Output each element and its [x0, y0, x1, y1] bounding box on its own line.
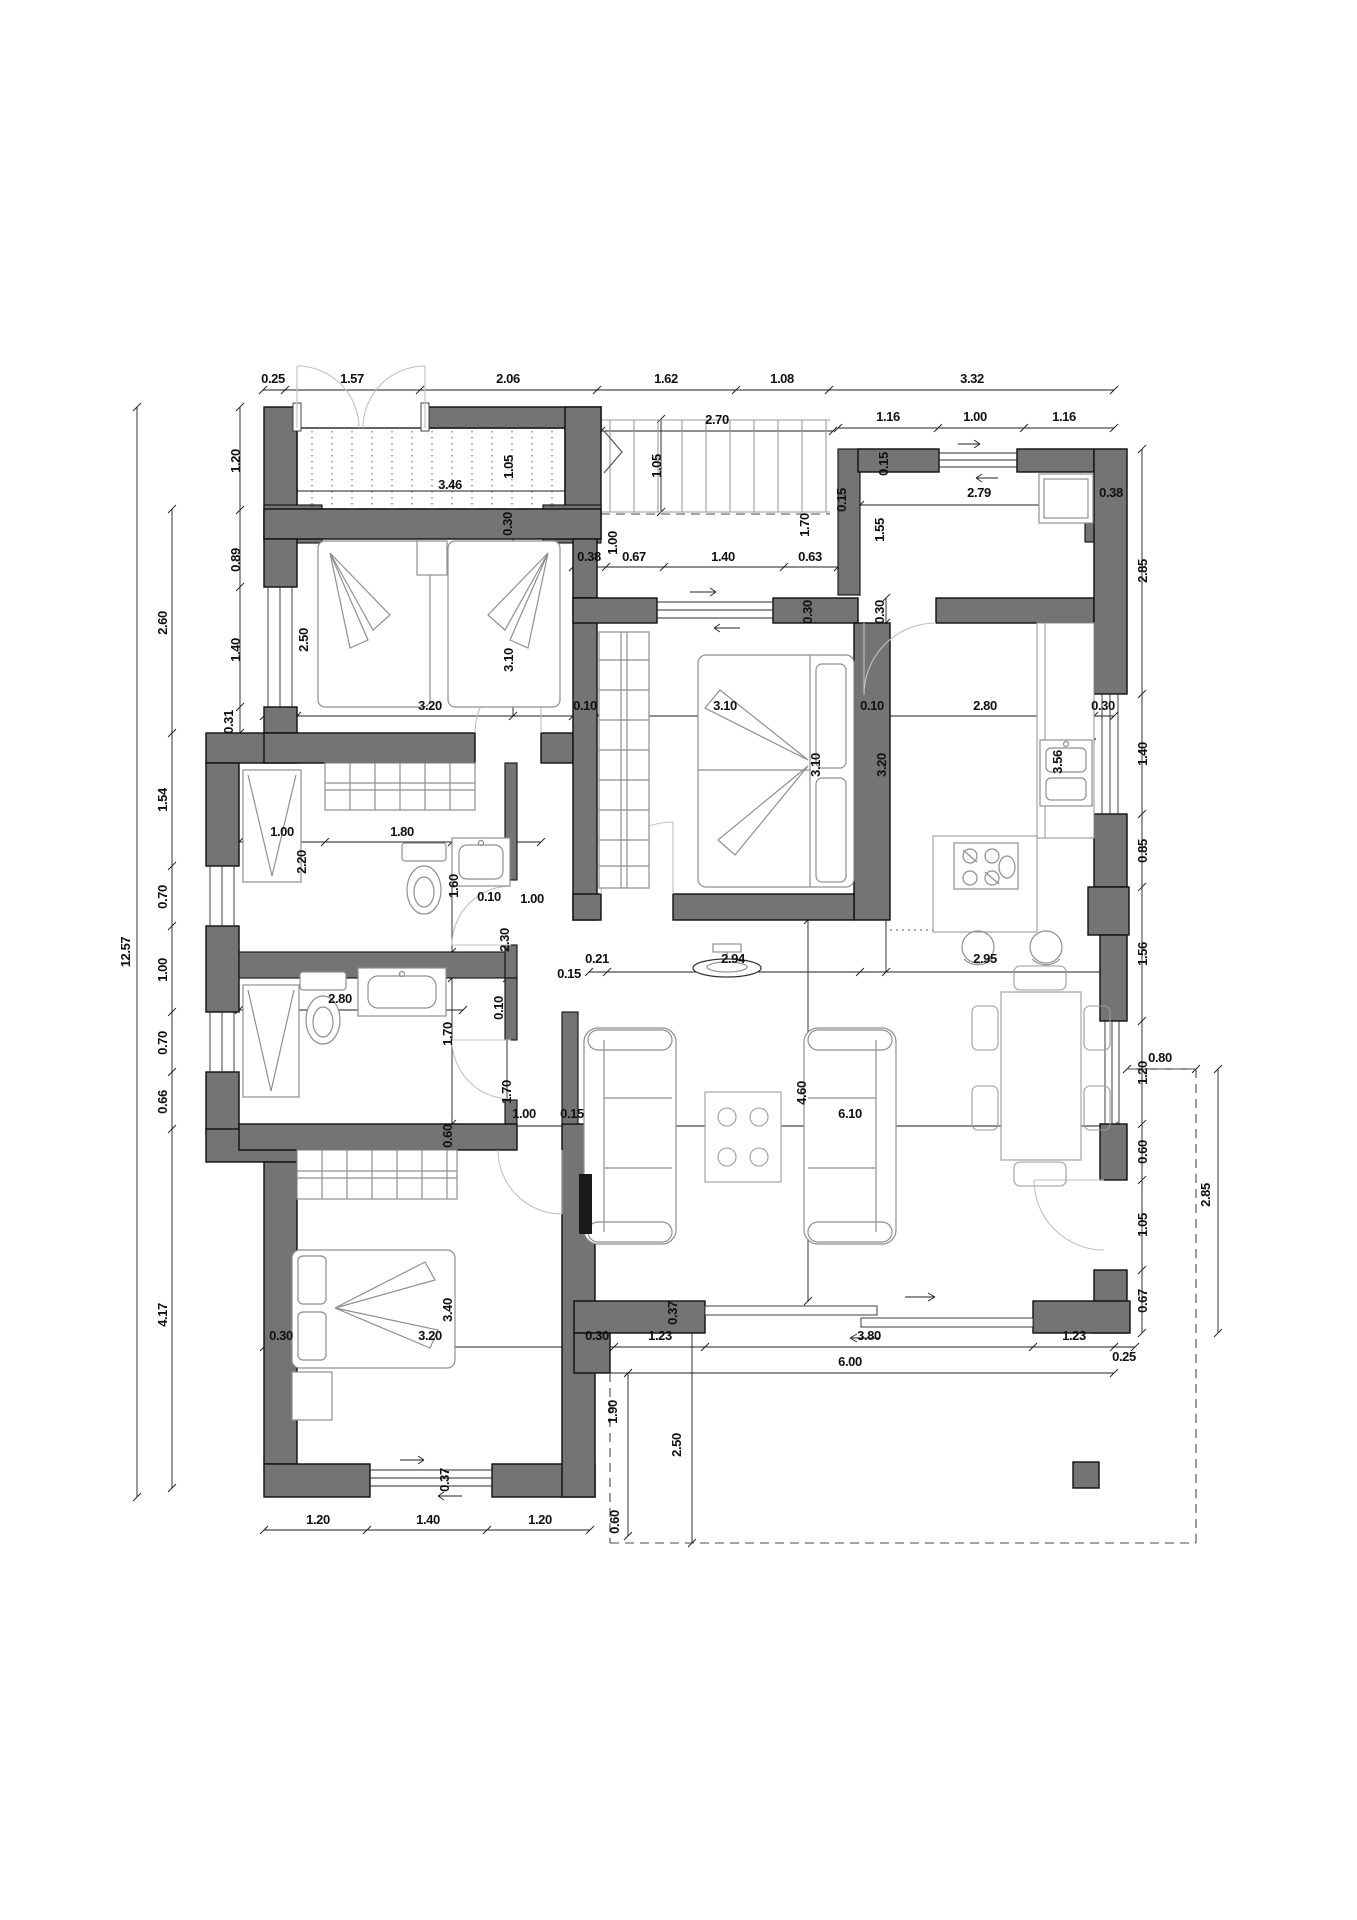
- dim-label: 0.30: [500, 512, 515, 536]
- bar-stool-icon: [1030, 931, 1062, 965]
- dim-label: 0.10: [860, 698, 884, 713]
- dim-label: 0.38: [1099, 485, 1123, 500]
- dim-label: 1.05: [501, 455, 516, 479]
- dim-label: 0.37: [665, 1301, 680, 1325]
- dim-label: 12.57: [118, 937, 133, 968]
- dim-label: 0.10: [573, 698, 597, 713]
- dim-label: 1.90: [605, 1400, 620, 1424]
- dim-label: 3.40: [440, 1298, 455, 1322]
- dim-label: 1.00: [155, 958, 170, 982]
- dim-label: 0.60: [607, 1510, 622, 1534]
- dim-label: 0.67: [1135, 1289, 1150, 1313]
- porch-pillar: [1073, 1462, 1099, 1488]
- sofa-icon: [804, 1028, 896, 1244]
- dim-label: 0.30: [269, 1328, 293, 1343]
- dim-label: 1.00: [963, 409, 987, 424]
- sofa-icon: [584, 1028, 676, 1244]
- dining-chair-icon: [972, 1006, 998, 1050]
- dim-label: 2.20: [294, 850, 309, 874]
- dim-label: 1.70: [440, 1022, 455, 1046]
- dim-label: 2.30: [497, 928, 512, 952]
- washbasin-icon: [358, 968, 446, 1016]
- dim-label: 3.32: [960, 371, 984, 386]
- dim-label: 0.15: [834, 488, 849, 512]
- dim-label: 0.30: [800, 600, 815, 624]
- window-icon: [939, 440, 1017, 482]
- wardrobe-closet: [599, 632, 649, 888]
- dim-label: 0.60: [440, 1124, 455, 1148]
- kitchen-sink-icon: [1040, 740, 1092, 806]
- dining-chair-icon: [972, 1086, 998, 1130]
- dim-label: 1.00: [605, 531, 620, 555]
- dim-label: 1.70: [797, 513, 812, 537]
- dim-label: 0.30: [1091, 698, 1115, 713]
- dim-label: 1.05: [649, 454, 664, 478]
- door-arc: [498, 1150, 562, 1214]
- dining-chair-icon: [1014, 966, 1066, 990]
- dim-label: 0.10: [491, 996, 506, 1020]
- dim-label: 1.08: [770, 371, 794, 386]
- dim-label: 0.70: [155, 885, 170, 909]
- dim-label: 2.06: [496, 371, 520, 386]
- upper-staircase: [601, 420, 830, 514]
- window-icon: [657, 588, 773, 632]
- shower-icon: [243, 985, 299, 1097]
- dim-label: 0.30: [872, 600, 887, 624]
- window-icon: [210, 1012, 234, 1072]
- dim-label: 1.40: [1135, 742, 1150, 766]
- dim-label: 1.20: [306, 1512, 330, 1527]
- dim-label: 0.15: [876, 452, 891, 476]
- dim-label: 0.60: [1135, 1140, 1150, 1164]
- dim-label: 6.10: [838, 1106, 862, 1121]
- dim-label: 3.20: [418, 1328, 442, 1343]
- dim-label: 1.70: [499, 1080, 514, 1104]
- window-icon: [1105, 1021, 1119, 1124]
- dim-label: 2.50: [296, 628, 311, 652]
- dim-label: 4.60: [794, 1081, 809, 1105]
- dim-label: 2.79: [967, 485, 991, 500]
- wardrobe-closet: [325, 763, 475, 810]
- dim-label: 0.38: [577, 549, 601, 564]
- dim-label: 1.55: [872, 518, 887, 542]
- dim-label: 0.21: [585, 951, 609, 966]
- dim-label: 2.70: [705, 412, 729, 427]
- toilet-icon: [402, 843, 446, 914]
- dim-label: 1.00: [270, 824, 294, 839]
- dim-label: 0.89: [228, 548, 243, 572]
- dim-label: 0.67: [622, 549, 646, 564]
- dim-label: 1.40: [228, 638, 243, 662]
- floor-plan-drawing: 0.251.572.061.621.083.322.701.161.001.16…: [0, 0, 1357, 1920]
- dim-label: 0.85: [1135, 839, 1150, 863]
- staircase: [297, 428, 565, 509]
- dim-label: 0.66: [155, 1090, 170, 1114]
- dim-label: 2.80: [973, 698, 997, 713]
- window-icon: [370, 1456, 492, 1500]
- window-icon: [210, 866, 234, 926]
- window-icon: [268, 587, 292, 707]
- dim-label: 0.25: [1112, 1349, 1136, 1364]
- dim-label: 1.54: [155, 787, 170, 812]
- dim-label: 3.10: [808, 753, 823, 777]
- dim-label: 1.16: [1052, 409, 1076, 424]
- dim-label: 1.62: [654, 371, 678, 386]
- dim-label: 1.00: [520, 891, 544, 906]
- dim-label: 1.16: [876, 409, 900, 424]
- toilet-icon: [300, 972, 346, 1044]
- dim-label: 1.80: [390, 824, 414, 839]
- coffee-table: [705, 1092, 781, 1182]
- dim-label: 1.20: [228, 449, 243, 473]
- dim-label: 1.00: [512, 1106, 536, 1121]
- dim-label: 0.15: [560, 1106, 584, 1121]
- dim-label: 3.20: [418, 698, 442, 713]
- wardrobe-closet: [297, 1150, 457, 1199]
- dim-label: 0.31: [221, 710, 236, 734]
- dim-label: 2.94: [721, 951, 746, 966]
- dim-label: 1.23: [648, 1328, 672, 1343]
- dim-label: 6.00: [838, 1354, 862, 1369]
- dim-label: 1.57: [340, 371, 364, 386]
- floor-plan-sheet: 0.251.572.061.621.083.322.701.161.001.16…: [0, 0, 1357, 1920]
- dining-chair-icon: [1014, 1162, 1066, 1186]
- dim-label: 0.70: [155, 1031, 170, 1055]
- cooktop-icon: [954, 843, 1018, 889]
- dim-label: 1.40: [711, 549, 735, 564]
- bed-icon: [318, 541, 560, 707]
- dim-label: 0.15: [557, 966, 581, 981]
- dining-table: [1001, 992, 1081, 1160]
- dim-label: 0.37: [437, 1468, 452, 1492]
- dim-label: 1.60: [446, 874, 461, 898]
- dim-label: 3.56: [1050, 750, 1065, 774]
- dim-label: 3.10: [501, 648, 516, 672]
- dim-label: 2.85: [1135, 559, 1150, 583]
- dim-label: 3.46: [438, 477, 462, 492]
- dim-label: 2.60: [155, 611, 170, 635]
- dim-label: 0.30: [585, 1328, 609, 1343]
- dim-label: 0.63: [798, 549, 822, 564]
- dim-label: 3.80: [857, 1328, 881, 1343]
- dim-label: 1.23: [1062, 1328, 1086, 1343]
- dim-label: 2.80: [328, 991, 352, 1006]
- dim-label: 1.20: [528, 1512, 552, 1527]
- dim-label: 1.05: [1135, 1213, 1150, 1237]
- dim-label: 1.40: [416, 1512, 440, 1527]
- door-arc: [1034, 1180, 1104, 1250]
- bed-icon: [698, 655, 854, 887]
- dim-label: 3.10: [713, 698, 737, 713]
- dim-label: 2.85: [1198, 1183, 1213, 1207]
- dim-label: 2.50: [669, 1433, 684, 1457]
- fridge-icon: [1039, 474, 1093, 523]
- dim-label: 1.56: [1135, 942, 1150, 966]
- dim-label: 2.95: [973, 951, 997, 966]
- tv-icon: [579, 1174, 592, 1234]
- dim-label: 0.80: [1148, 1050, 1172, 1065]
- dim-label: 3.20: [874, 753, 889, 777]
- dim-label: 0.25: [261, 371, 285, 386]
- dim-label: 4.17: [155, 1303, 170, 1327]
- dim-label: 0.10: [477, 889, 501, 904]
